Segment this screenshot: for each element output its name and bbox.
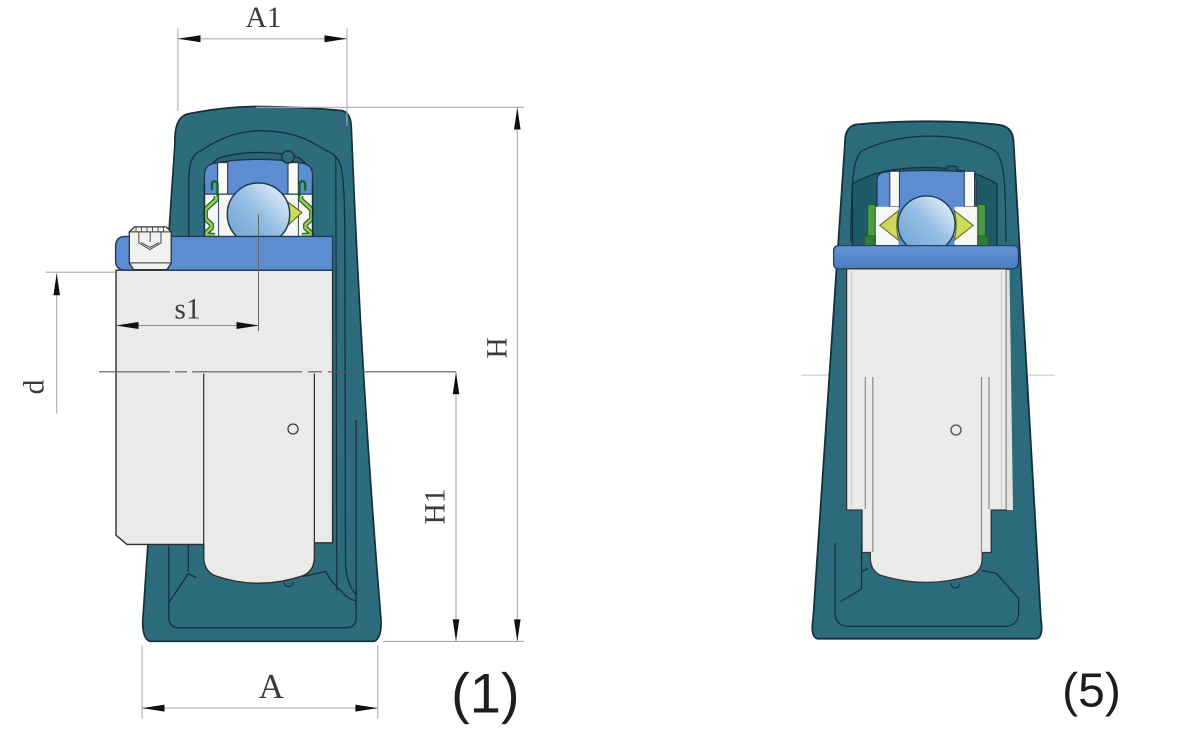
svg-text:A: A bbox=[259, 667, 285, 706]
svg-text:(5): (5) bbox=[1062, 665, 1121, 718]
svg-text:H1: H1 bbox=[420, 488, 452, 524]
svg-text:A1: A1 bbox=[245, 2, 281, 34]
svg-text:d: d bbox=[19, 379, 51, 394]
svg-text:(1): (1) bbox=[451, 662, 519, 725]
svg-text:H: H bbox=[482, 337, 514, 358]
svg-text:s1: s1 bbox=[174, 294, 200, 326]
